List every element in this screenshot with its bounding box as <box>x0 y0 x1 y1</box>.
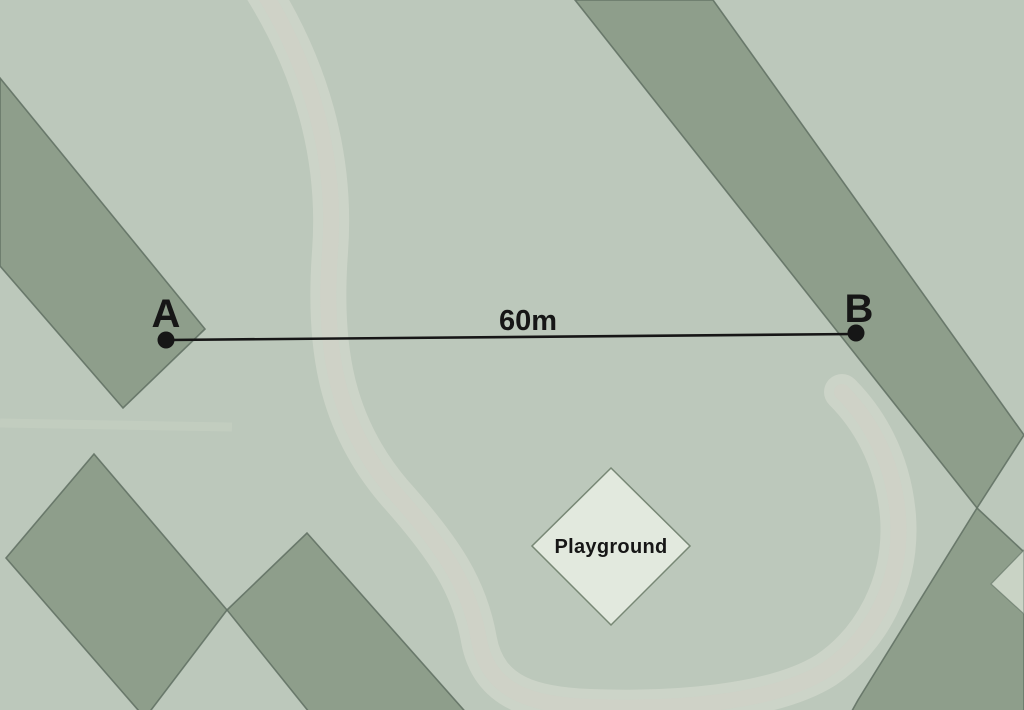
map-canvas: Playground A B 60m <box>0 0 1024 710</box>
light-streak <box>0 423 232 427</box>
playground-label: Playground <box>554 536 667 558</box>
distance-label: 60m <box>499 305 557 337</box>
marker-b-label: B <box>845 287 874 331</box>
marker-a-label: A <box>152 292 181 336</box>
